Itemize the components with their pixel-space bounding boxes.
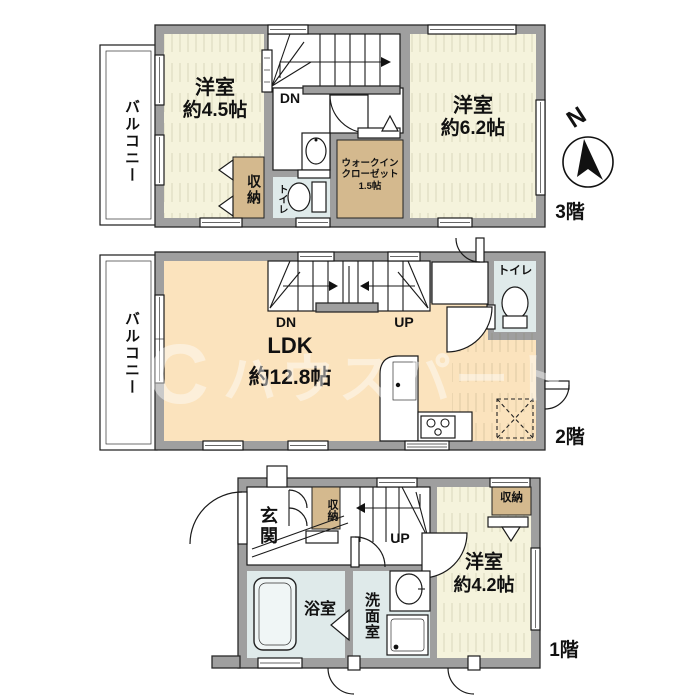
room-4_2-name: 洋室 [437, 552, 531, 575]
door-leaf [476, 238, 484, 262]
ldk-floor [164, 261, 268, 311]
room-4_2-label: 洋室 約4.2帖 [437, 552, 531, 596]
toilet-icon [288, 182, 326, 212]
bath-label: 浴室 [294, 600, 346, 619]
closet-3f-label: 収納 [236, 163, 262, 217]
washroom-label: 洗面室 [356, 576, 380, 656]
toilet-3f-door [298, 170, 330, 178]
door-arc [328, 668, 354, 694]
entrance-door-leaf [238, 492, 247, 544]
toilet-3f-label: トイレ [273, 180, 287, 218]
stairs-dn-2f-label: DN [268, 314, 304, 331]
floor2-label: 2階 [546, 427, 594, 450]
ldk-size-label: 約12.8帖 [215, 365, 365, 390]
hall-closet-door [306, 531, 338, 543]
wic-line1: ウォークイン [337, 158, 403, 169]
door-leaf [267, 466, 287, 487]
room-4_5-name: 洋室 [166, 76, 264, 100]
washing-machine-icon [387, 615, 428, 655]
washroom-door-leaf [351, 537, 359, 567]
wall-stub-1f [212, 656, 240, 668]
floor3-plan [100, 25, 613, 227]
balcony-3f-label: バルコニー [104, 86, 140, 196]
hall-closet-label: 収納 [314, 490, 338, 530]
toilet-icon [502, 287, 528, 328]
wic-line2: クローゼット [337, 169, 403, 180]
wic-line3: 1.5帖 [337, 181, 403, 192]
door-arc [448, 668, 474, 694]
room-closet-door-leaf [488, 517, 528, 527]
room-4_5-size: 約4.5帖 [166, 100, 264, 123]
toilet-2f-label: トイレ [494, 265, 536, 279]
entrance-door-arc [190, 492, 242, 544]
genkan-label: 玄関 [250, 491, 278, 561]
stairs-2f-divider [316, 303, 378, 312]
stove-icon [421, 416, 455, 438]
stairs-3f-wall [303, 86, 400, 94]
floorplan-page: バルコニー 洋室 約4.5帖 収納 DN トイレ ウォークイン クローゼット 1… [0, 0, 700, 700]
floor3-label: 3階 [546, 202, 594, 225]
door-leaf [348, 656, 360, 670]
room-4_2-size: 約4.2帖 [437, 575, 531, 597]
sink-icon [302, 133, 330, 170]
bathtub-icon [254, 578, 296, 650]
stairs-dn-3f-label: DN [272, 90, 308, 107]
compass-icon [563, 137, 613, 187]
balcony-2f-label: バルコニー [104, 298, 140, 408]
door-leaf [545, 381, 569, 389]
door-leaf [468, 656, 480, 670]
room-6_2-label: 洋室 約6.2帖 [412, 94, 534, 141]
wic-label: ウォークイン クローゼット 1.5帖 [337, 158, 403, 192]
room-4_5-label: 洋室 約4.5帖 [166, 76, 264, 123]
room-6_2-size: 約6.2帖 [412, 118, 534, 141]
room-6_2-name: 洋室 [412, 94, 534, 118]
sink-icon [390, 571, 430, 611]
floor1-label: 1階 [540, 640, 588, 663]
stairs-up-1f-label: UP [382, 530, 418, 547]
closet-2f [432, 262, 488, 304]
stairs-up-2f-label: UP [386, 314, 422, 331]
ldk-name-label: LDK [225, 333, 355, 359]
room-closet-label: 収納 [492, 492, 531, 506]
